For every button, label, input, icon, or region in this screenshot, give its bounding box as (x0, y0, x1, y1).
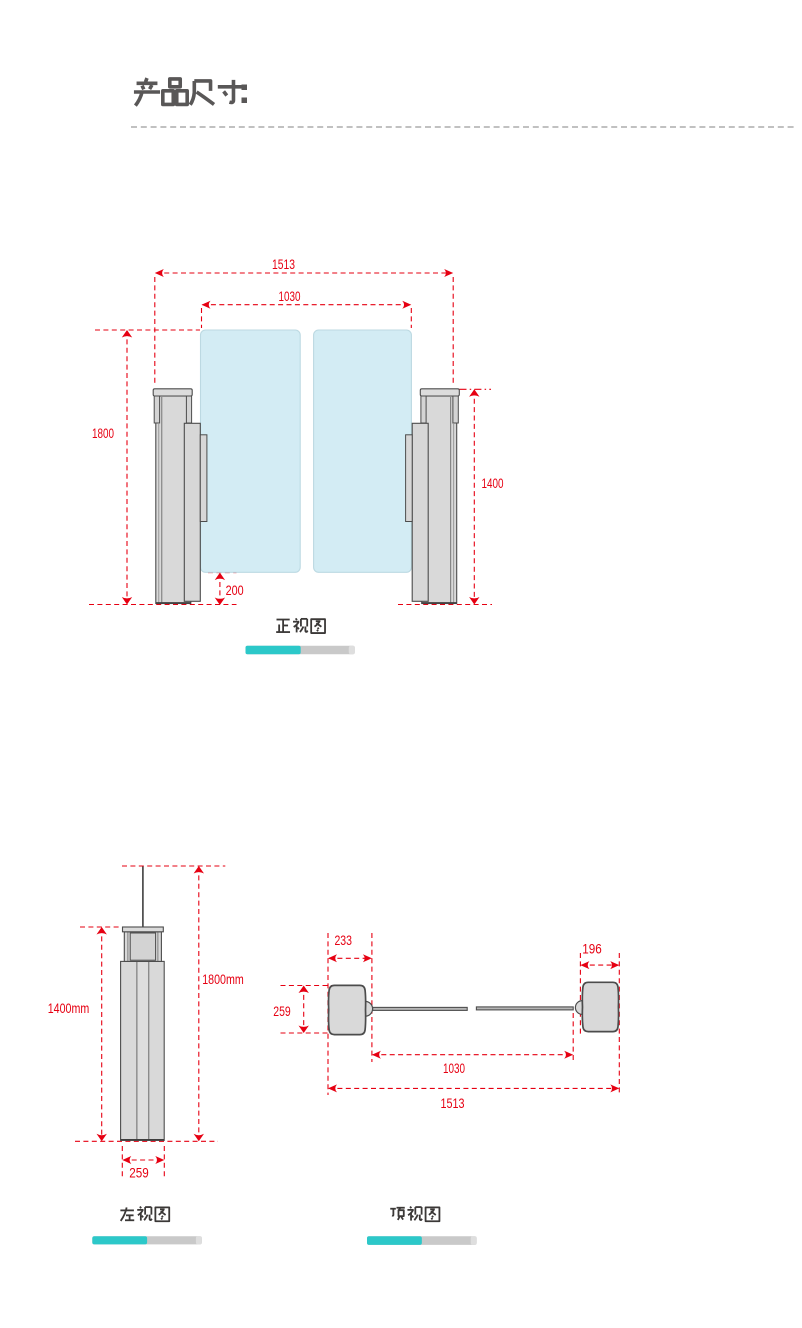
svg-text:1030: 1030 (443, 1060, 465, 1076)
svg-text:233: 233 (334, 932, 352, 948)
svg-text:1400mm: 1400mm (48, 1000, 90, 1016)
svg-text:196: 196 (582, 941, 602, 957)
svg-text:1400: 1400 (482, 475, 504, 491)
svg-text:259: 259 (129, 1165, 149, 1181)
svg-text:1800: 1800 (92, 425, 114, 441)
svg-text:1030: 1030 (279, 288, 301, 304)
svg-text:1800mm: 1800mm (202, 971, 244, 987)
svg-text:200: 200 (226, 582, 244, 598)
svg-text:259: 259 (273, 1003, 291, 1019)
svg-text:1513: 1513 (272, 256, 295, 272)
svg-text:1513: 1513 (441, 1095, 465, 1111)
